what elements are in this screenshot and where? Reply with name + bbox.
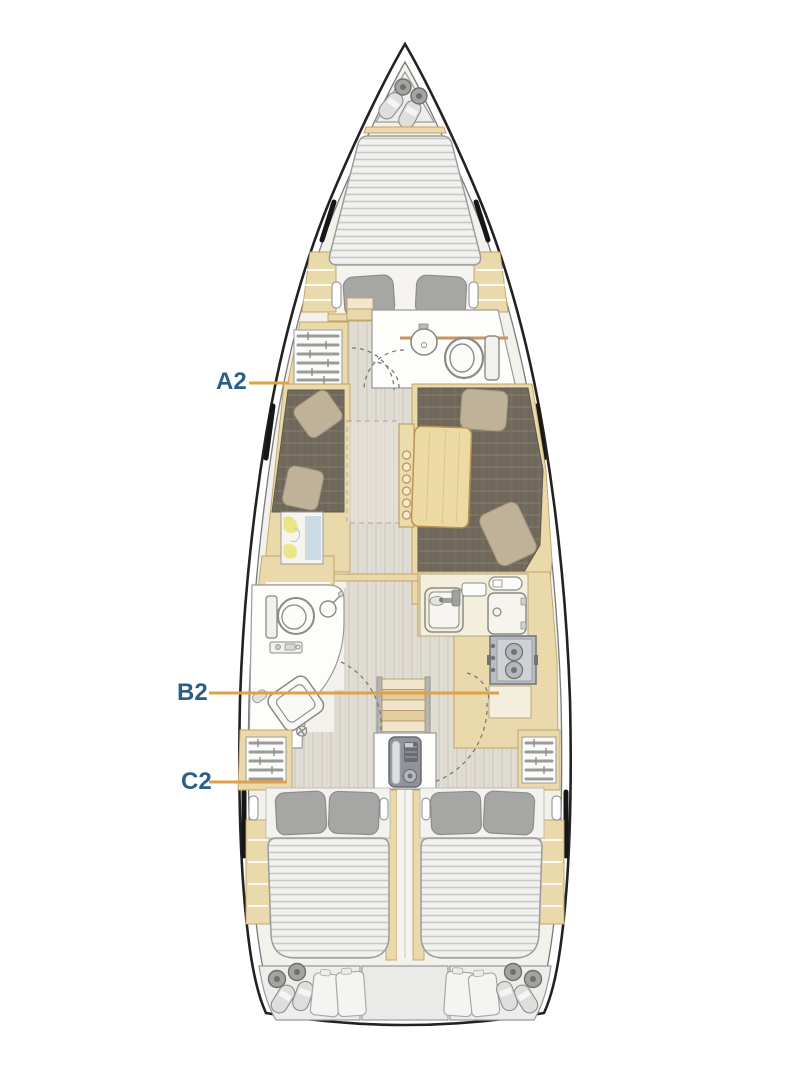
reading-light-icon — [249, 796, 258, 820]
chart-table-map — [281, 512, 323, 564]
fridge-icon — [488, 593, 526, 634]
step — [347, 298, 373, 309]
aft-cabin-port-bed — [266, 788, 390, 958]
settee-pillow — [460, 388, 509, 431]
salon-table — [347, 421, 472, 528]
bed-pillow — [328, 791, 379, 835]
toilet-icon — [445, 336, 499, 380]
forward-head — [372, 310, 516, 388]
step — [347, 309, 373, 320]
reading-light-icon — [422, 798, 430, 820]
galley-lower-counter — [489, 686, 531, 718]
dish-icon — [489, 577, 522, 590]
boat-layout-diagram: A2 B2 C2 — [0, 0, 810, 1080]
mattress — [421, 838, 542, 958]
bed-pillow — [430, 791, 481, 835]
reading-light-icon — [469, 282, 478, 308]
aft-cabins — [246, 788, 564, 960]
stove-icon — [487, 636, 538, 684]
reading-light-icon — [380, 798, 388, 820]
label-a2: A2 — [216, 368, 247, 395]
label-b2: B2 — [177, 679, 208, 706]
label-c2: C2 — [181, 768, 212, 795]
companionway-steps — [382, 679, 425, 732]
reading-light-icon — [552, 796, 561, 820]
table-leaf-folded — [347, 421, 399, 523]
table-top — [411, 426, 471, 528]
deck-plan-svg: A2 B2 C2 — [0, 0, 810, 1080]
aft-wardrobe-starboard — [518, 730, 560, 790]
bed-pillow — [275, 791, 327, 836]
bed-pillow — [483, 791, 535, 836]
stern-center-locker — [362, 966, 448, 1020]
settee-pillow — [281, 465, 325, 512]
reading-light-icon — [332, 282, 341, 308]
salon-aft-trim — [334, 574, 418, 581]
stern-lockers — [259, 964, 551, 1021]
mattress — [268, 838, 389, 958]
tray-icon — [462, 583, 486, 596]
aft-cabin-starboard-bed — [420, 788, 544, 958]
galley-sink-icon — [425, 588, 463, 632]
wardrobe-panel — [294, 330, 342, 386]
bulkhead-trim — [364, 127, 446, 133]
engine-icon — [389, 737, 421, 787]
